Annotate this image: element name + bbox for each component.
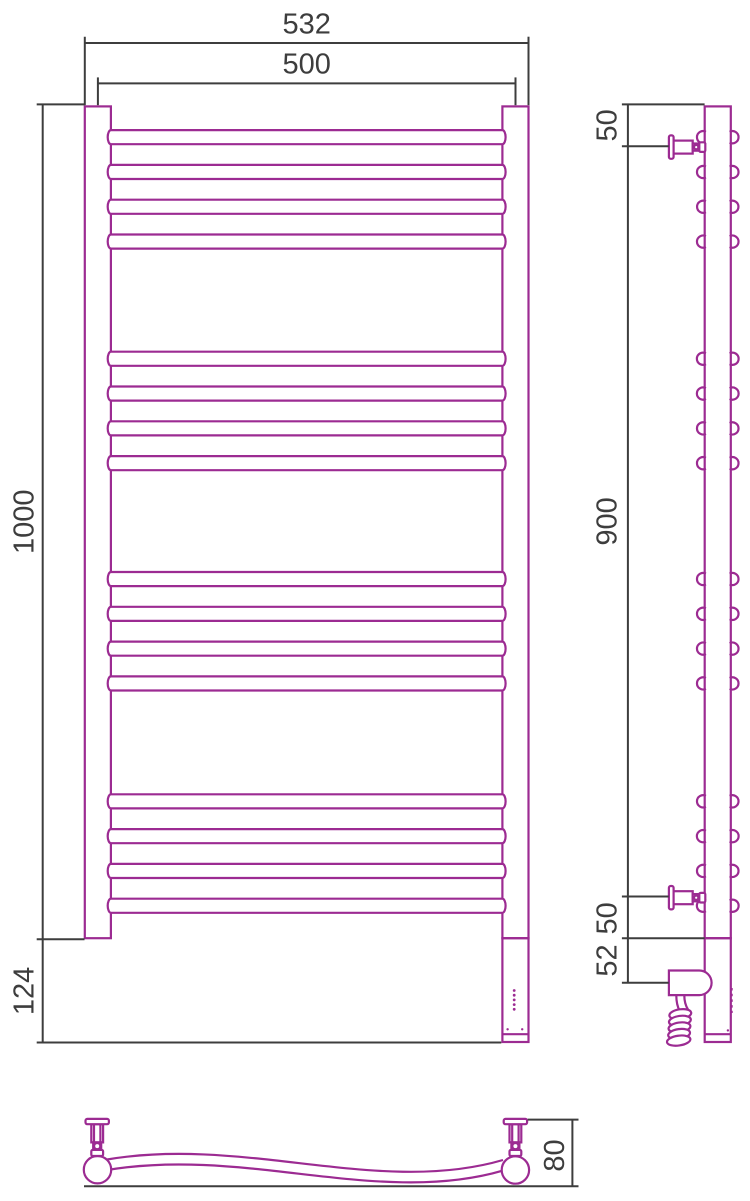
svg-text:500: 500 [283, 49, 331, 81]
svg-text:50: 50 [592, 902, 624, 934]
svg-text:80: 80 [539, 1139, 571, 1171]
svg-text:532: 532 [283, 9, 331, 41]
svg-text:1000: 1000 [9, 490, 41, 555]
svg-text:124: 124 [9, 967, 41, 1015]
svg-text:900: 900 [592, 497, 624, 545]
svg-text:50: 50 [592, 109, 624, 141]
svg-text:52: 52 [592, 944, 624, 976]
